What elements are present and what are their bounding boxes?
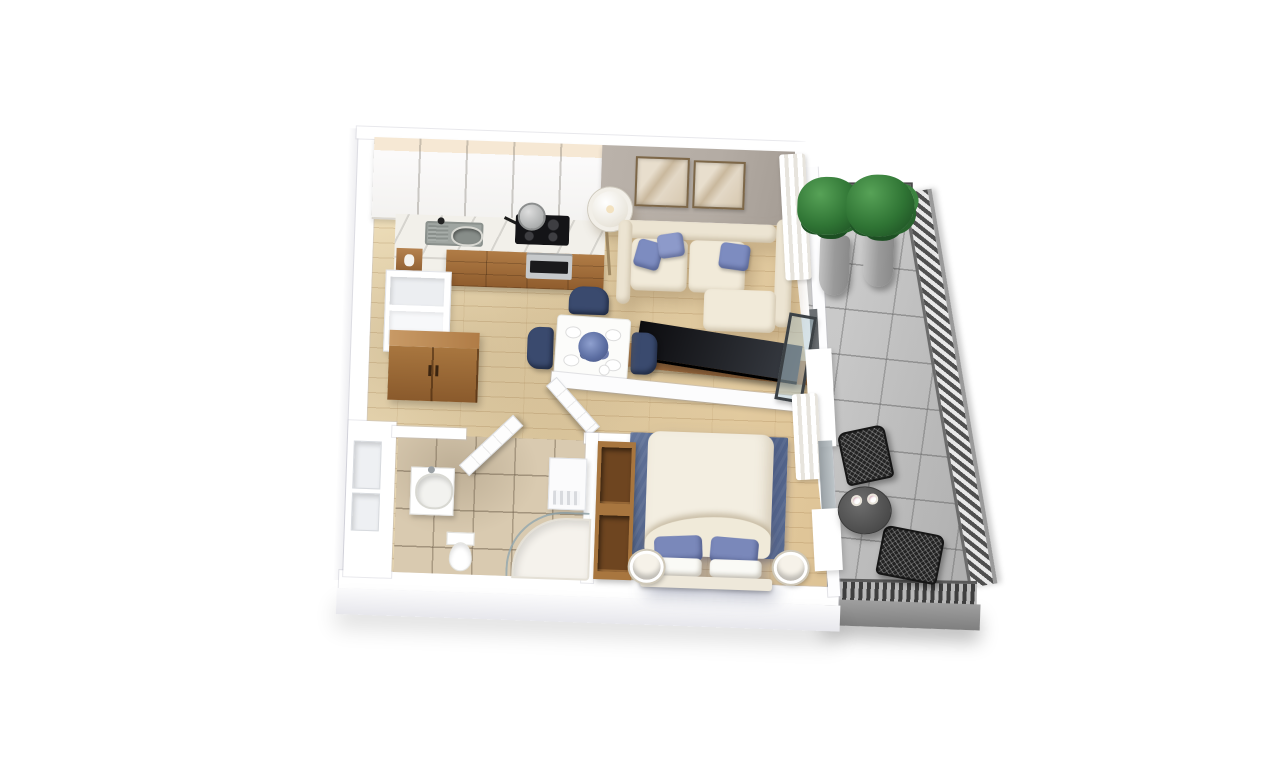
wash-basin: [415, 473, 454, 510]
wall-art: [692, 160, 746, 210]
throw-pillow: [656, 232, 685, 259]
sofa-armrest: [616, 220, 633, 304]
sofa: [615, 214, 795, 334]
wardrobe-handle: [435, 365, 438, 376]
floor-plan: [325, 122, 1024, 705]
shelf-opening: [597, 515, 629, 572]
wall-art: [634, 156, 690, 208]
oven: [526, 252, 573, 280]
wardrobe-handle: [428, 365, 431, 376]
plate: [605, 329, 622, 342]
bed-pillow-white: [709, 559, 762, 579]
cup: [851, 495, 862, 506]
plant-pot: [863, 230, 895, 287]
cup: [598, 364, 610, 376]
wall-niche: [352, 441, 382, 490]
hallway-wardrobe: [387, 330, 479, 403]
dining-chair: [568, 286, 609, 315]
wash-basin-unit: [409, 467, 455, 517]
dining-table: [553, 314, 631, 381]
plant-pot: [818, 235, 850, 296]
cabinet-section: [390, 277, 445, 307]
bedroom-curtains: [792, 393, 822, 480]
sofa-chaise: [703, 289, 776, 333]
oven-window: [530, 261, 568, 274]
vase: [404, 254, 414, 266]
shelf-opening: [600, 447, 632, 504]
sink-basin: [451, 226, 484, 247]
balcony-slab-edge: [824, 599, 981, 630]
sink-drainboard: [428, 225, 449, 242]
cup: [867, 493, 878, 504]
bedroom-shelf-unit: [593, 441, 636, 580]
dining-chair: [527, 327, 554, 370]
plate: [563, 354, 580, 367]
bathroom-storage-unit: [548, 457, 588, 510]
throw-pillow: [718, 242, 751, 272]
wall-niche: [351, 492, 380, 531]
storage-ribs: [553, 490, 580, 505]
wardrobe-doors: [387, 346, 479, 403]
toilet: [448, 542, 472, 572]
kitchen-sink: [425, 221, 484, 247]
basin-faucet: [428, 466, 435, 473]
dining-chair: [630, 332, 657, 375]
plate: [565, 326, 582, 339]
